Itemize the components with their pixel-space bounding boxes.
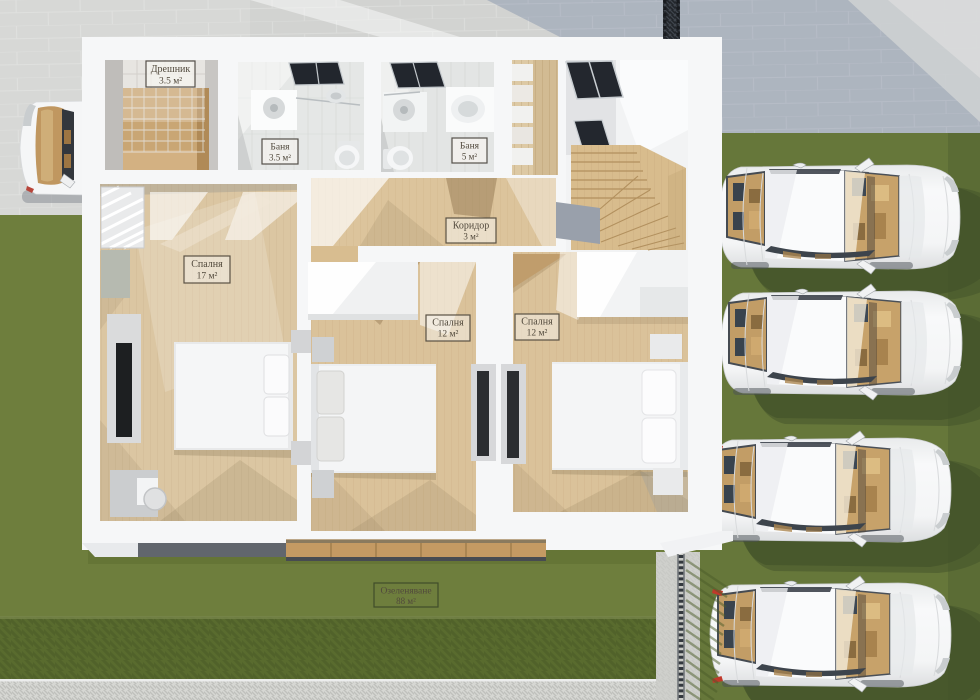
svg-text:3.5 м²: 3.5 м²: [159, 77, 182, 87]
svg-text:3.5 м²: 3.5 м²: [269, 153, 291, 163]
svg-text:Спалня: Спалня: [432, 318, 464, 329]
svg-text:Коридор: Коридор: [453, 221, 490, 232]
svg-text:3 м²: 3 м²: [463, 232, 478, 242]
svg-text:Спалня: Спалня: [191, 259, 223, 270]
svg-text:Баня: Баня: [460, 142, 480, 152]
svg-text:Дрешник: Дрешник: [151, 64, 191, 75]
svg-text:Озеленяване: Озеленяване: [380, 587, 431, 597]
svg-text:12 м²: 12 м²: [438, 330, 459, 340]
svg-text:5 м²: 5 м²: [462, 152, 477, 162]
svg-text:Баня: Баня: [270, 143, 290, 153]
svg-text:17 м²: 17 м²: [197, 272, 218, 282]
svg-text:88 м²: 88 м²: [396, 596, 416, 606]
svg-text:Спалня: Спалня: [521, 317, 553, 328]
svg-text:12 м²: 12 м²: [527, 329, 548, 339]
